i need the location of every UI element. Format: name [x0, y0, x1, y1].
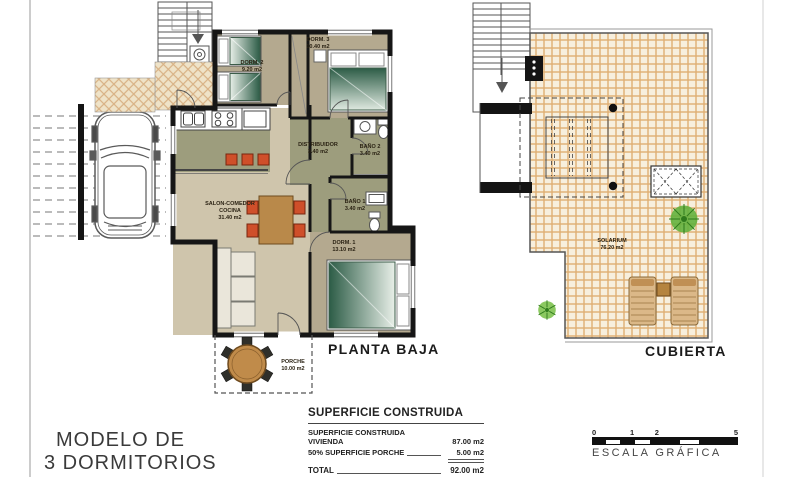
room-label-dorm1: DORM. 1 13.10 m2 — [320, 240, 368, 254]
left-notch — [480, 103, 532, 193]
bar-stool — [258, 154, 269, 165]
roof-access-block — [525, 56, 543, 81]
room-label-dorm2: DORM. 2 9.20 m2 — [228, 60, 276, 74]
planta-baja-caption: PLANTA BAJA — [328, 341, 440, 357]
car — [90, 112, 160, 238]
leader-line — [337, 473, 441, 474]
washing-machine-icon — [190, 46, 209, 63]
room-label-solarium: SOLARIUM 76.20 m2 — [584, 238, 640, 252]
bar-stool — [226, 154, 237, 165]
room-label-dorm3: DORM. 3 10.40 m2 — [296, 37, 340, 51]
roof-drain — [609, 104, 617, 112]
plant-icon-small — [538, 300, 556, 320]
kitchen-sink-icon — [184, 113, 193, 125]
cubierta-plan — [473, 3, 712, 342]
bar-stool — [242, 154, 253, 165]
room-label-porche: PORCHE 10.00 m2 — [272, 359, 314, 373]
double-rule — [448, 459, 484, 463]
bed-dorm2-b — [217, 72, 261, 102]
entry-staircase — [158, 2, 212, 63]
kitchen-counter — [175, 108, 270, 130]
roof-staircase — [473, 3, 530, 112]
sofa — [215, 248, 255, 328]
table-row-total: TOTAL 92.00 m2 — [308, 466, 484, 475]
plant-icon — [669, 204, 699, 234]
dining-chair — [294, 201, 305, 214]
room-label-bano1: BAÑO 1 3.40 m2 — [336, 199, 374, 213]
table-row: 50% SUPERFICIE PORCHE 5.00 m2 — [308, 448, 484, 457]
cubierta-caption: CUBIERTA — [645, 343, 727, 359]
graphic-scale: 0 1 2 5 ESCALA GRÁFICA — [592, 428, 738, 459]
toilet-icon — [370, 219, 380, 232]
table-row: SUPERFICIE CONSTRUIDA VIVIENDA 87.00 m2 — [308, 428, 484, 446]
roof-drain — [609, 182, 617, 190]
plan-sheet: DORM. 2 9.20 m2 DORM. 3 10.40 m2 DISTRIB… — [0, 0, 788, 477]
room-label-salon: SALON-COMEDOR COCINA 31.40 m2 — [197, 201, 263, 222]
dining-chair — [294, 224, 305, 237]
toilet-icon — [379, 126, 389, 139]
skylight — [651, 166, 701, 197]
room-label-bano2: BAÑO 2 3.40 m2 — [350, 144, 390, 158]
floor-plan-drawing — [0, 0, 788, 477]
nightstand — [314, 50, 326, 62]
porch-table — [221, 337, 273, 391]
built-area-title: SUPERFICIE CONSTRUIDA — [308, 407, 484, 424]
entry-path-tiles — [95, 62, 215, 112]
driveway-wall — [78, 104, 84, 240]
model-title: MODELO DE 3 DORMITORIOS — [40, 429, 217, 475]
built-area-table: SUPERFICIE CONSTRUIDA SUPERFICIE CONSTRU… — [308, 407, 484, 477]
dining-chair — [247, 224, 258, 237]
scale-bar-segments — [592, 437, 738, 445]
leader-line — [407, 455, 441, 456]
scale-tick-numbers: 0 1 2 5 — [592, 428, 738, 437]
side-table — [657, 283, 670, 296]
planta-baja-plan — [33, 2, 417, 393]
scale-label: ESCALA GRÁFICA — [592, 447, 738, 459]
bed-dorm1 — [327, 260, 411, 330]
room-label-distribuidor: DISTRIBUIDOR 3.40 m2 — [294, 142, 342, 156]
